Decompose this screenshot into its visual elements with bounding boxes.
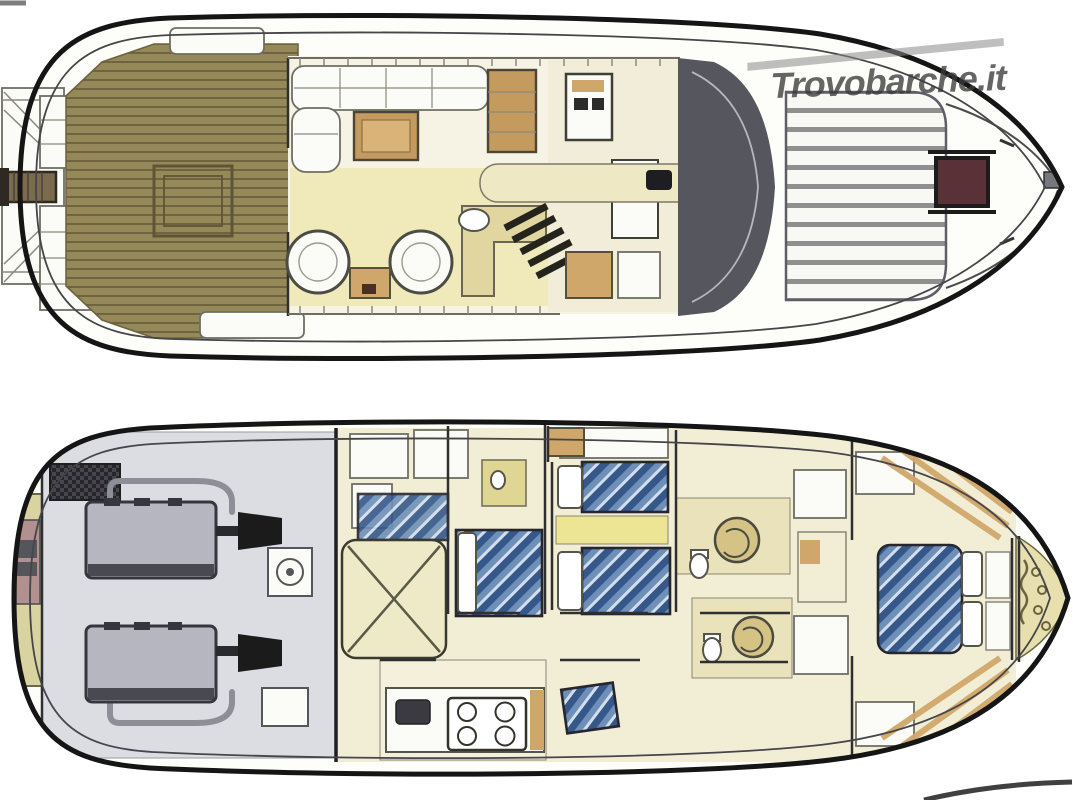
salon-cabinet — [488, 70, 536, 152]
toilet — [703, 638, 721, 662]
galley-sink — [396, 700, 430, 724]
helm-seat — [646, 170, 672, 190]
teak-cockpit-deck — [66, 28, 304, 338]
engine-room-hatch — [342, 540, 446, 658]
gearbox — [238, 634, 282, 672]
foredeck-hatch — [936, 158, 988, 206]
yacht-floorplans: Trovobarche.it — [0, 0, 1073, 800]
main-deck-plan: Trovobarche.it — [0, 16, 1062, 359]
armchair — [287, 231, 349, 293]
watermark-text: Trovobarche.it — [770, 57, 1010, 106]
toilet — [690, 554, 708, 578]
twin-bed — [582, 548, 670, 614]
armchair — [390, 231, 452, 293]
midship-closets — [794, 470, 848, 674]
engine-room — [42, 432, 336, 758]
settee-berth — [561, 683, 619, 734]
guest-cabin-center — [456, 530, 542, 616]
anchor-locker — [1016, 536, 1067, 660]
foredeck-sunpad — [786, 92, 946, 300]
yacht-floorplan-page: Trovobarche.it — [0, 0, 1073, 800]
galley-locker — [566, 252, 612, 298]
twin-cabin-port — [556, 462, 670, 614]
lower-deck-plan — [14, 422, 1068, 774]
salon-sofa-chaise — [292, 108, 340, 172]
helm-walkway — [480, 164, 702, 202]
cockpit-bench — [170, 28, 264, 54]
vip-island-bed — [878, 545, 962, 653]
crew-berth — [358, 494, 448, 540]
gearbox — [238, 512, 282, 550]
twin-bed — [582, 462, 668, 512]
shower — [715, 518, 759, 562]
